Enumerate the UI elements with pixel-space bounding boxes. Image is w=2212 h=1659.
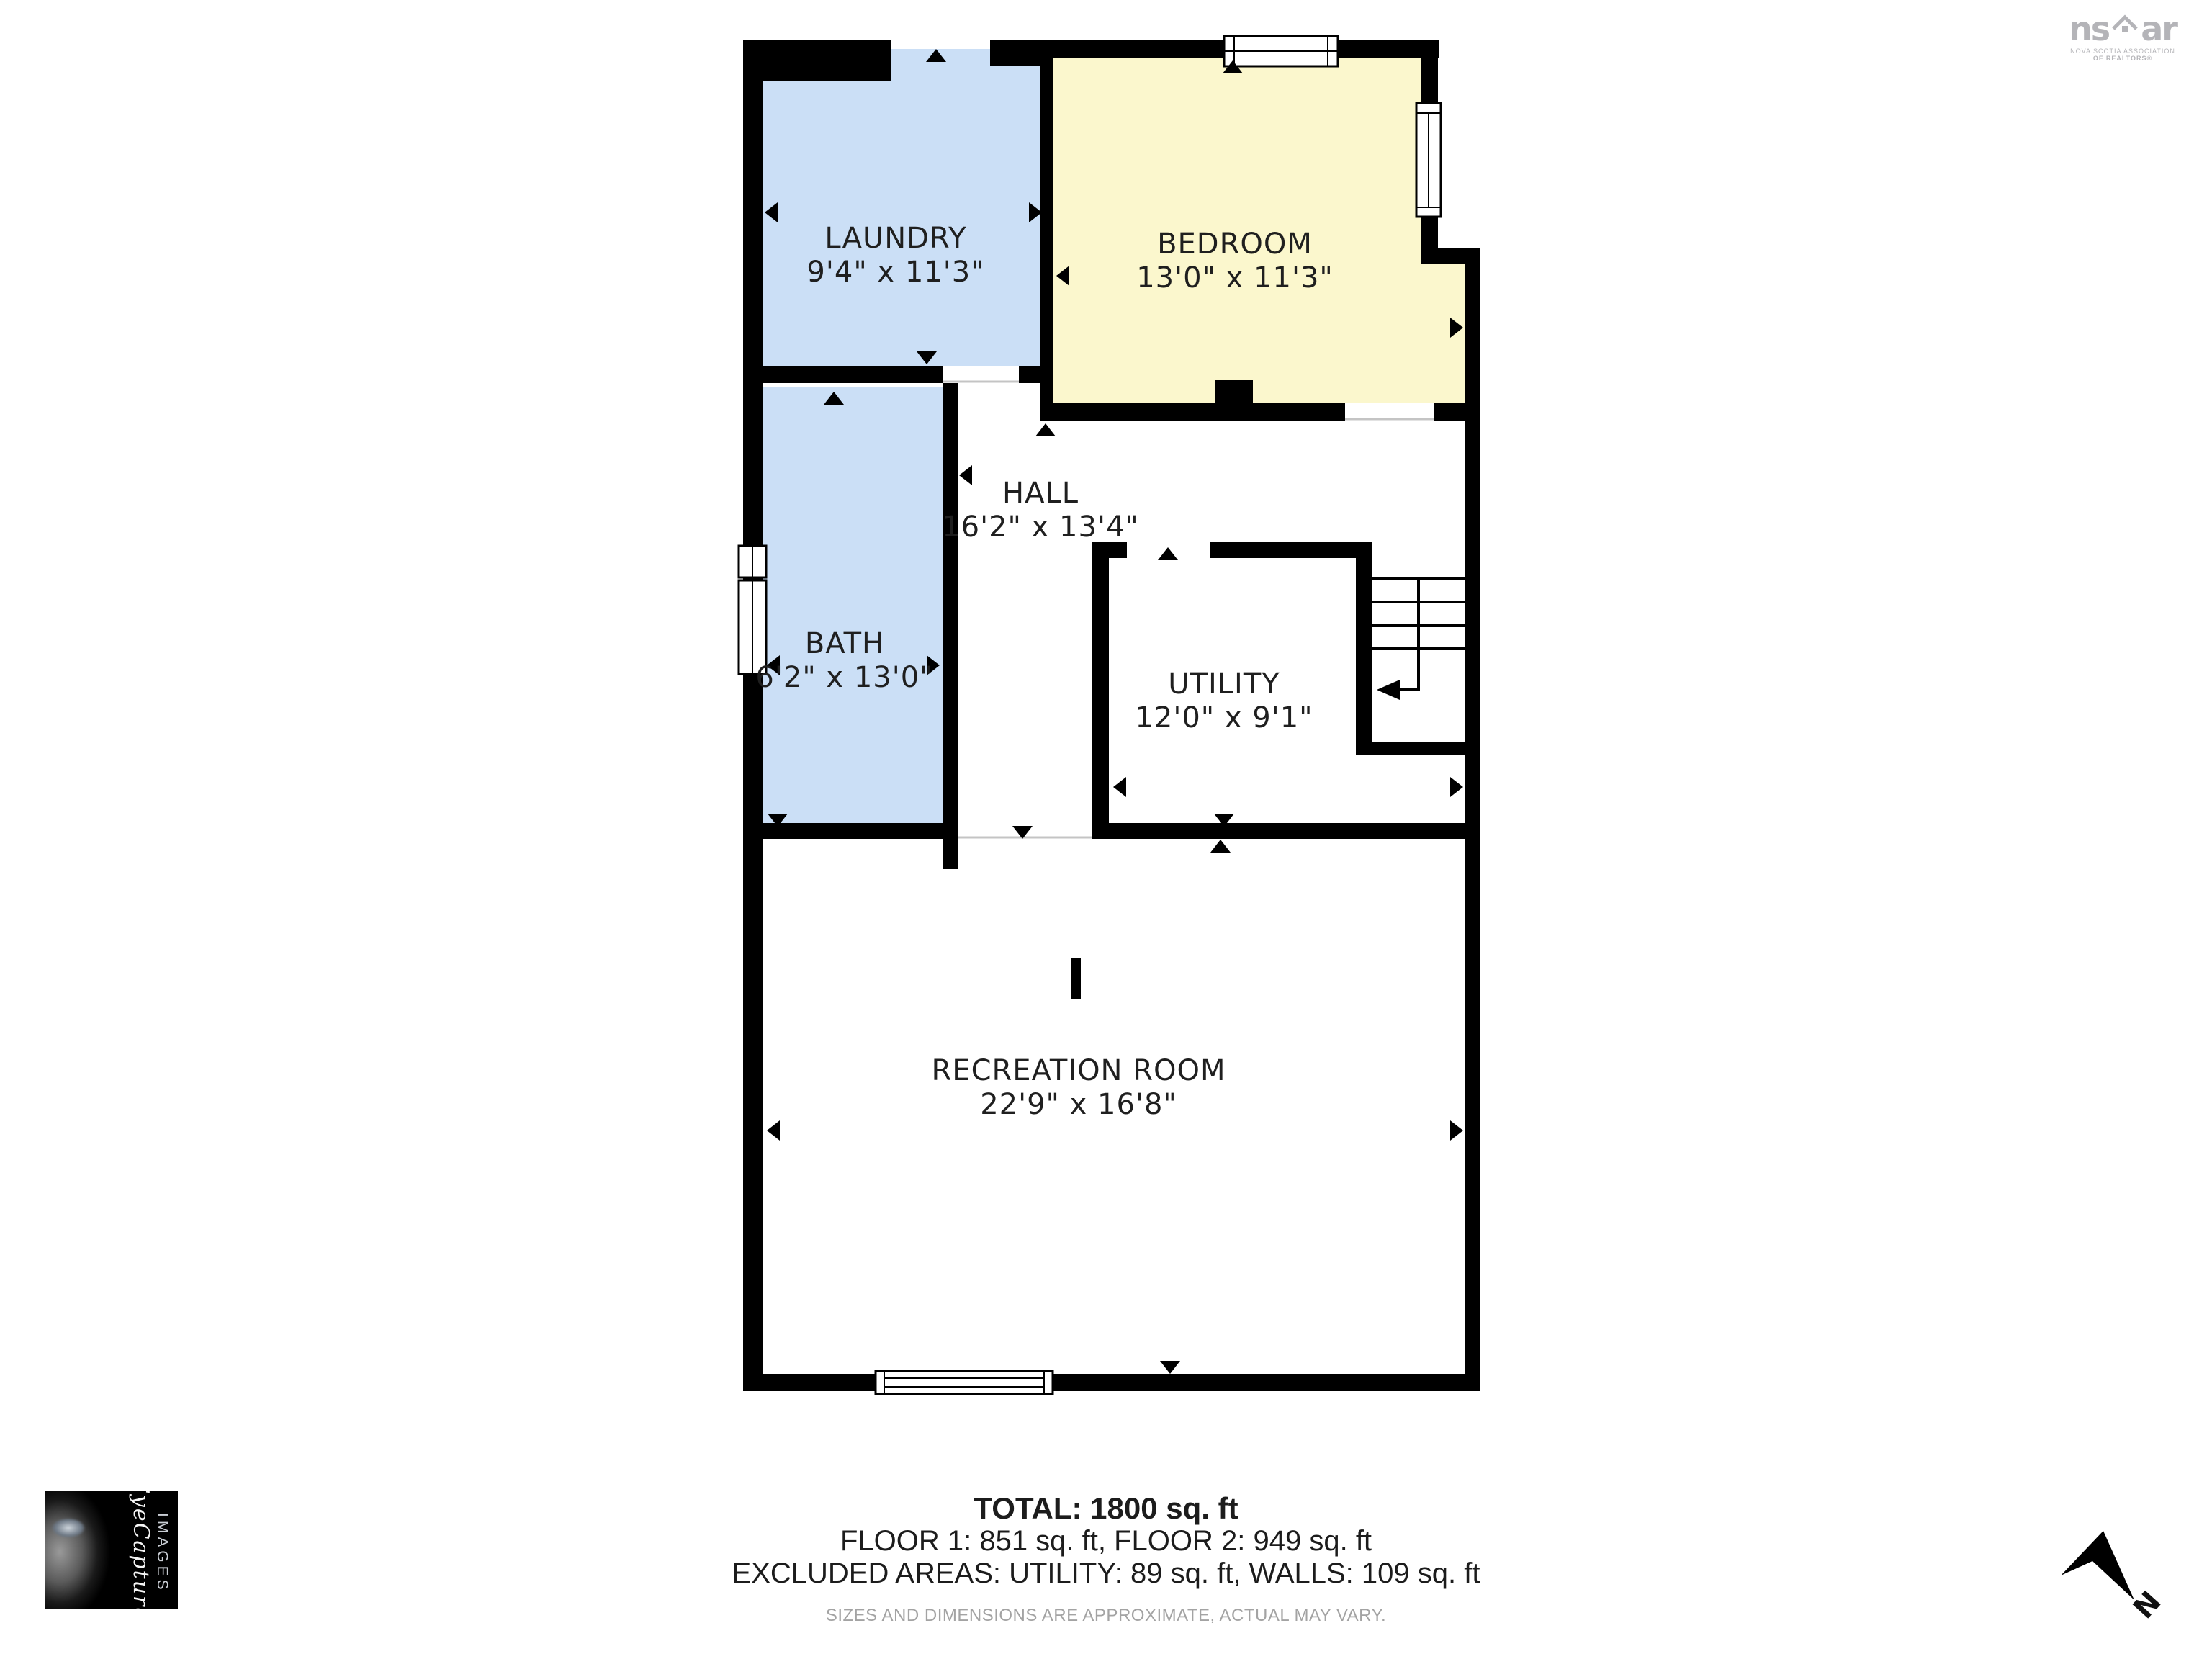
marker-hall-right-icon — [1450, 777, 1463, 797]
compass: N — [2038, 1505, 2196, 1649]
recreation-dims: 22'9" x 16'8" — [980, 1088, 1177, 1121]
wall-top-left — [743, 40, 891, 81]
disclaimer-text: SIZES AND DIMENSIONS ARE APPROXIMATE, AC… — [0, 1606, 2212, 1626]
wall-left-exterior — [743, 40, 763, 1391]
hall-dims: 16'2" x 13'4" — [942, 511, 1139, 544]
wall-bedroom-bottom-corner — [1434, 403, 1480, 421]
recreation-label: RECREATION ROOM — [932, 1054, 1226, 1087]
eyecapture-script-text: EyeCapture — [128, 1491, 153, 1609]
total-area-text: TOTAL: 1800 sq. ft — [0, 1492, 2212, 1525]
bath-label: BATH — [805, 627, 884, 660]
wall-top-mid — [990, 40, 1053, 66]
excluded-areas-text: EXCLUDED AREAS: UTILITY: 89 sq. ft, WALL… — [0, 1557, 2212, 1590]
hall-label: HALL — [1002, 477, 1079, 510]
eyecapture-images-text: IMAGES — [153, 1513, 171, 1593]
window-bath-lower — [739, 580, 766, 674]
marker-rec-top-icon — [1210, 840, 1231, 853]
bath-dims: 6'2" x 13'0" — [755, 661, 933, 694]
window-rec-bottom — [876, 1371, 1053, 1394]
wall-utility-right — [1356, 542, 1372, 755]
marker-hall-top-icon — [1035, 423, 1056, 436]
marker-rec-right-icon — [1450, 1120, 1463, 1141]
window-bath-upper — [739, 546, 766, 577]
wall-bedroom-bottom — [1040, 403, 1345, 421]
laundry-dims: 9'4" x 11'3" — [806, 256, 984, 289]
wall-utility-left — [1092, 542, 1109, 839]
wall-utility-top-left — [1092, 542, 1127, 558]
wall-stair-bottom — [1372, 742, 1465, 755]
north-arrow-icon — [2061, 1531, 2134, 1600]
eyecapture-logo: EyeCapture IMAGES — [45, 1491, 178, 1609]
marker-utility-left-icon — [1113, 777, 1126, 797]
wall-rec-stub — [1071, 958, 1081, 999]
nsar-ns-text: ns — [2069, 14, 2109, 43]
nsar-logo: ns ar NOVA SCOTIA ASSOCIATION OF REALTOR… — [2058, 14, 2188, 62]
wall-bath-right — [943, 383, 958, 869]
wall-bottom-exterior — [743, 1374, 1480, 1391]
house-icon — [2110, 14, 2139, 43]
wall-hall-rec-long — [1092, 823, 1480, 839]
eyecapture-face-image — [45, 1491, 125, 1609]
utility-label: UTILITY — [1168, 667, 1280, 701]
floor-areas-text: FLOOR 1: 851 sq. ft, FLOOR 2: 949 sq. ft — [0, 1525, 2212, 1557]
area-summary: TOTAL: 1800 sq. ft FLOOR 1: 851 sq. ft, … — [0, 1492, 2212, 1626]
bedroom-label: BEDROOM — [1157, 228, 1313, 261]
nsar-subline1: NOVA SCOTIA ASSOCIATION — [2058, 48, 2188, 55]
marker-utility-door-icon — [1158, 547, 1178, 560]
marker-hall-left-icon — [959, 465, 972, 485]
floorplan-drawing: LAUNDRY 9'4" x 11'3" BEDROOM 13'0" x 11'… — [0, 0, 2212, 1659]
wall-utility-top-right — [1210, 542, 1372, 558]
nsar-wordmark: ns ar — [2058, 14, 2188, 43]
nsar-subline2: OF REALTORS® — [2058, 55, 2188, 62]
marker-rec-left-icon — [767, 1120, 780, 1141]
wall-laundry-bottom-corner — [1019, 366, 1053, 383]
bedroom-dims: 13'0" x 11'3" — [1136, 261, 1334, 295]
wall-laundry-bottom — [743, 366, 943, 383]
bath-area — [763, 387, 943, 823]
marker-rec-bottom-icon — [1160, 1361, 1180, 1374]
laundry-room-area — [763, 49, 1040, 366]
nsar-ar-text: ar — [2141, 14, 2177, 43]
wall-bath-bottom — [743, 823, 958, 839]
staircase — [1372, 578, 1465, 690]
north-label: N — [2127, 1585, 2168, 1625]
window-bedroom-right — [1416, 103, 1441, 217]
wall-bedroom-notch-step — [1421, 248, 1480, 264]
stair-direction-arrow-icon — [1377, 680, 1400, 700]
laundry-label: LAUNDRY — [824, 222, 966, 255]
window-bedroom-top — [1224, 36, 1338, 66]
utility-dims: 12'0" x 9'1" — [1135, 701, 1313, 734]
floorplan-page: LAUNDRY 9'4" x 11'3" BEDROOM 13'0" x 11'… — [0, 0, 2212, 1659]
